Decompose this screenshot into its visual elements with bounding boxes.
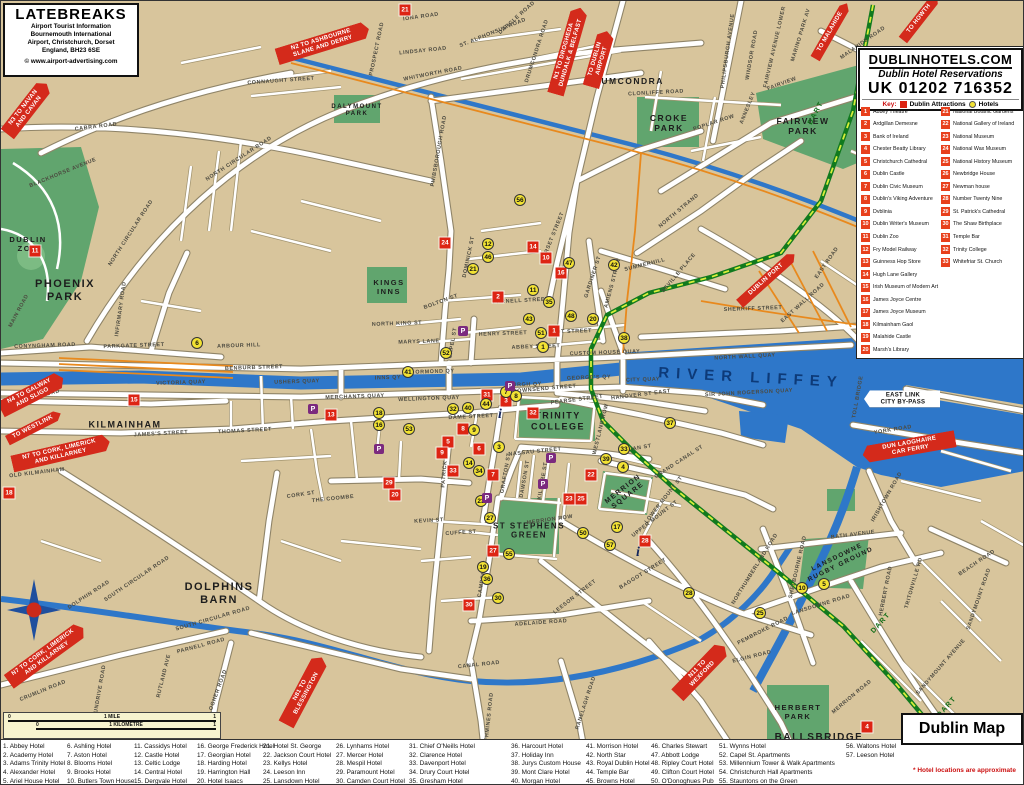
attraction-number: 5: [861, 157, 870, 166]
road-label: DRUMCONDRA ROAD: [524, 19, 550, 84]
hotel-legend-item: 47. Abbott Lodge: [651, 752, 714, 761]
attraction-list-item: 14Hugh Lane Gallery: [861, 270, 917, 279]
attraction-name: Christchurch Cathedral: [873, 159, 927, 165]
hotel-legend-item: 30. Camden Court Hotel: [336, 778, 405, 785]
hotel-legend-item: 41. Morrison Hotel: [586, 743, 650, 752]
road-label: LEESON STREET: [552, 578, 597, 615]
map-area-label: RIVER LIFFEY: [658, 364, 844, 391]
attraction-marker: 18: [4, 488, 15, 499]
road-label: SEVILLE PLACE: [661, 252, 698, 294]
attraction-number: 8: [861, 195, 870, 204]
road-label: WESTLAND ROW: [592, 403, 611, 455]
attraction-list-item: 20Marsh's Library: [861, 345, 909, 354]
attraction-number: 33: [941, 258, 950, 267]
road-label: CLONLIFFE ROAD: [628, 89, 684, 98]
attraction-list-item: 9Dvblinia: [861, 207, 892, 216]
attraction-name: Bank of Ireland: [873, 134, 909, 140]
road-label: INFIRMARY ROAD: [114, 281, 128, 337]
attraction-list-item: 25National History Museum: [941, 157, 1012, 166]
map-area-label: HERBERT PARK: [775, 704, 822, 722]
attraction-marker: 2: [493, 292, 504, 303]
hotel-marker: 40: [462, 402, 474, 414]
road-label: CONYNGHAM ROAD: [14, 342, 76, 350]
hotel-marker: 35: [543, 296, 555, 308]
road-label: SANDYMOUNT ROAD: [966, 567, 993, 630]
hotel-legend-item: 56. Waltons Hotel: [846, 743, 896, 752]
hotel-legend-item: 9. Brooks Hotel: [67, 769, 134, 778]
road-label: BENBURB STREET: [225, 364, 283, 372]
road-label: NORTH WALL QUAY: [714, 352, 776, 361]
parking-icon: P: [458, 326, 468, 336]
attraction-number: 25: [941, 157, 950, 166]
attraction-list-item: 28Number Twenty Nine: [941, 195, 1002, 204]
hotel-legend-item: 14. Central Hotel: [134, 769, 187, 778]
attraction-list-item: 27Newman house: [941, 182, 990, 191]
road-label: SUNDRIVE ROAD: [92, 664, 107, 717]
hotel-legend-column: 6. Ashling Hotel7. Aston Hotel8. Blooms …: [67, 743, 134, 785]
direction-banner: EAST LINK CITY BY-PASS: [864, 390, 940, 407]
direction-banner: N81 TO BLESSINGTON: [278, 653, 329, 728]
attraction-number: 13: [861, 258, 870, 267]
hotel-legend-column: 46. Charles Stewart47. Abbott Lodge48. R…: [651, 743, 714, 785]
hotel-legend-item: 12. Castle Hotel: [134, 752, 187, 761]
scale-bar: 0 1 MILE 1 0 1 KILOMETRE 1: [3, 712, 221, 739]
road-label: ELGIN ROAD: [732, 649, 772, 664]
attraction-list-item: 11Dublin Zoo: [861, 233, 899, 242]
road-label: DARGLE ROAD: [498, 0, 537, 36]
hotel-marker: 5: [818, 578, 830, 590]
hotel-marker: 34: [473, 465, 485, 477]
map-title-box: Dublin Map: [901, 713, 1023, 745]
scale-one: 1: [213, 722, 216, 728]
attraction-marker: 28: [640, 536, 651, 547]
road-label: ABBEY STREET: [512, 343, 561, 351]
attraction-list-item: 33Whitefriar St. Church: [941, 258, 1002, 267]
road-label: MERRION ROAD: [831, 679, 873, 716]
road-label: PHIBSBOROUGH ROAD: [430, 115, 448, 187]
attraction-name: National Museum: [953, 134, 994, 140]
road-label: GARDINER ST: [583, 255, 602, 298]
hotel-marker: 48: [565, 310, 577, 322]
attraction-marker: 7: [488, 470, 499, 481]
road-label: ANNESLEY: [739, 91, 757, 125]
hotel-legend: 1. Abbey Hotel2. Academy Hotel3. Adams T…: [1, 739, 1024, 785]
publisher-line: Airport, Christchurch, Dorset: [5, 39, 137, 47]
attraction-number: 17: [861, 308, 870, 317]
attraction-marker: 13: [326, 410, 337, 421]
road-label: PROSPECT ROAD: [368, 22, 385, 77]
road-label: SUMMERHILL: [624, 257, 666, 273]
attraction-name: Marsh's Library: [873, 347, 909, 353]
road-label: NORTHUMBERLAND ROAD: [731, 532, 780, 605]
map-area-label: KINGS INNS: [373, 279, 404, 297]
hotel-legend-item: 4. Alexander Hotel: [3, 769, 65, 778]
hotel-legend-item: 37. Holiday Inn: [511, 752, 581, 761]
information-icon: i: [636, 545, 640, 561]
hotel-legend-item: 23. Kellys Hotel: [263, 760, 331, 769]
hotel-legend-item: 24. Leeson Inn: [263, 769, 331, 778]
hotel-marker: 56: [514, 194, 526, 206]
hotel-legend-item: 11. Cassidys Hotel: [134, 743, 187, 752]
hotel-marker: 55: [503, 548, 515, 560]
direction-banner: N3 TO NAVAN AND CAVAN: [0, 78, 53, 139]
hotel-marker: 21: [467, 263, 479, 275]
attraction-name: Dublin Castle: [873, 171, 905, 177]
road-label: USHERS QUAY: [274, 378, 320, 386]
road-label: ARBOUR HILL: [217, 342, 261, 350]
map-area-label: DALYMOUNT PARK: [331, 104, 382, 118]
hotel-marker: 41: [402, 366, 414, 378]
attraction-marker: 6: [474, 444, 485, 455]
hotel-marker: 42: [608, 259, 620, 271]
hotel-legend-item: 27. Mercer Hotel: [336, 752, 405, 761]
hotel-legend-item: 6. Ashling Hotel: [67, 743, 134, 752]
hotel-marker: 19: [477, 561, 489, 573]
hotel-legend-item: 35. Gresham Hotel: [409, 778, 475, 785]
road-label: MERCHANTS QUAY: [325, 393, 385, 401]
attraction-marker: 14: [528, 242, 539, 253]
hotel-legend-column: 36. Harcourt Hotel37. Holiday Inn38. Jur…: [511, 743, 581, 785]
road-label: FAIRVIEW: [767, 76, 798, 92]
hotel-legend-item: 5. Ariel House Hotel: [3, 778, 65, 785]
hotel-legend-item: 3. Adams Trinity Hotel: [3, 760, 65, 769]
attraction-name: Dublin Civic Museum: [873, 184, 923, 190]
hotel-legend-column: 31. Chief O'Neills Hotel32. Clarence Hot…: [409, 743, 475, 785]
hotel-legend-item: 45. Browns Hotel: [586, 778, 650, 785]
hotel-reservations-panel: DUBLINHOTELS.COM Dublin Hotel Reservatio…: [856, 46, 1024, 359]
map-area-label: FAIRVIEW PARK: [777, 116, 830, 136]
publisher-line: England, BH23 6SE: [5, 47, 137, 55]
map-area-label: LANSDOWNE RUGBY GROUND: [803, 538, 874, 583]
attraction-number: 32: [941, 245, 950, 254]
road-label: CRUMLIN ROAD: [19, 679, 67, 703]
attraction-number: 7: [861, 182, 870, 191]
road-label: MARINO PARK AV: [790, 8, 812, 62]
attraction-marker: 22: [586, 470, 597, 481]
hotel-marker: 30: [492, 592, 504, 604]
road-label: LANSDOWNE ROAD: [791, 593, 851, 617]
map-area-label: MERRION SQUARE: [604, 473, 648, 513]
attraction-name: Irish Museum of Modern Art: [873, 284, 938, 290]
hotel-marker: 46: [482, 251, 494, 263]
road-label: NORTH STRAND: [658, 193, 700, 230]
attraction-number: 16: [861, 295, 870, 304]
hotel-legend-item: 29. Paramount Hotel: [336, 769, 405, 778]
road-label: GRAFTON ST: [499, 452, 512, 493]
attraction-list-item: 10Dublin Writer's Museum: [861, 220, 929, 229]
hotel-legend-item: 42. North Star: [586, 752, 650, 761]
attraction-number: 28: [941, 195, 950, 204]
road-label: DAWSON ST: [519, 460, 532, 499]
attraction-name: National Botanic Gardens: [953, 109, 1013, 115]
hotel-legend-column: 21. Hotel St. George22. Jackson Court Ho…: [263, 743, 331, 785]
attraction-list-item: 4Chester Beatty Library: [861, 145, 926, 154]
hotel-marker: 39: [600, 453, 612, 465]
attraction-list-item: 22National Gallery of Ireland: [941, 120, 1014, 129]
road-label: BAGGOT STREET: [618, 557, 667, 591]
scale-km-bar: [36, 728, 216, 730]
attraction-marker: 33: [448, 466, 459, 477]
attraction-number: 14: [861, 270, 870, 279]
hotel-marker: 57: [604, 539, 616, 551]
hotel-marker: 12: [482, 238, 494, 250]
road-label: CANAL ROAD: [458, 660, 501, 670]
hotel-marker: 3: [493, 441, 505, 453]
road-label: MARYS LANE: [398, 338, 440, 345]
road-label: DOLPHIN ROAD: [67, 579, 111, 611]
attraction-list-item: 5Christchurch Cathedral: [861, 157, 927, 166]
hotel-legend-item: 49. Clifton Court Hotel: [651, 769, 714, 778]
attraction-list-item: 1Abbey Theatre: [861, 107, 908, 116]
attraction-number: 22: [941, 120, 950, 129]
attraction-number: 3: [861, 132, 870, 141]
hotel-marker: 44: [480, 398, 492, 410]
attraction-number: 23: [941, 132, 950, 141]
road-label: LINDSAY ROAD: [399, 46, 447, 57]
road-label: IRISHTOWN ROAD: [870, 471, 903, 523]
direction-banner: DUBLIN PORT: [736, 250, 798, 307]
hotel-marker: 36: [481, 573, 493, 585]
hotel-legend-item: 36. Harcourt Hotel: [511, 743, 581, 752]
road-label: SHERRIFF STREET: [724, 305, 783, 313]
hotel-marker: 27: [484, 512, 496, 524]
attraction-list-item: 32Trinity College: [941, 245, 987, 254]
hotel-legend-column: 51. Wynns Hotel52. Capel St. Apartments5…: [719, 743, 835, 785]
hotel-legend-item: 51. Wynns Hotel: [719, 743, 835, 752]
road-label: POPLAR ROW: [693, 113, 736, 132]
attraction-list-item: 12Fry Model Railway: [861, 245, 917, 254]
hotel-marker: 43: [523, 313, 535, 325]
hotel-marker: 53: [403, 423, 415, 435]
attraction-name: Chester Beatty Library: [873, 146, 926, 152]
attraction-marker: 16: [556, 268, 567, 279]
attraction-number: 1: [861, 107, 870, 116]
hotel-marker: 25: [754, 607, 766, 619]
attraction-marker: 25: [576, 494, 587, 505]
hotel-marker: 18: [373, 407, 385, 419]
site-subtitle: Dublin Hotel Reservations: [862, 69, 1019, 80]
attraction-marker: 9: [437, 448, 448, 459]
road-label: VICTORIA QUAY: [156, 379, 206, 387]
road-label: PARNELL ROAD: [176, 637, 225, 656]
hotel-legend-item: 34. Drury Court Hotel: [409, 769, 475, 778]
attraction-name: Trinity College: [953, 247, 987, 253]
publisher-box: LATEBREAKS Airport Tourist Information B…: [3, 3, 139, 77]
attraction-name: Guinness Hop Store: [873, 259, 921, 265]
hotel-marker: 11: [527, 284, 539, 296]
road-label: NORTH CIRCULAR ROAD: [107, 199, 154, 267]
attraction-list-item: 7Dublin Civic Museum: [861, 182, 923, 191]
attraction-number: 2: [861, 120, 870, 129]
attraction-number: 30: [941, 220, 950, 229]
attraction-marker: 29: [384, 478, 395, 489]
hotel-legend-item: 43. Royal Dublin Hotel: [586, 760, 650, 769]
publisher-website: © www.airport-advertising.com: [5, 58, 137, 65]
attraction-name: Abbey Theatre: [873, 109, 908, 115]
scale-zero: 0: [8, 714, 11, 720]
road-label: CONNAUGHT STREET: [247, 76, 315, 87]
hotel-legend-item: 15. Dergvale Hotel: [134, 778, 187, 785]
attraction-name: James Joyce Centre: [873, 297, 921, 303]
attraction-name: Temple Bar: [953, 234, 980, 240]
attraction-number: 26: [941, 170, 950, 179]
attraction-name: The Shaw Birthplace: [953, 221, 1002, 227]
attraction-number: 12: [861, 245, 870, 254]
attraction-marker: 24: [440, 238, 451, 249]
road-label: NORTH KING ST: [372, 320, 423, 328]
hotel-legend-item: 54. Christchurch Hall Apartments: [719, 769, 835, 778]
attraction-marker: 21: [400, 5, 411, 16]
hotel-legend-item: 28. Mespil Hotel: [336, 760, 405, 769]
publisher-title: LATEBREAKS: [5, 6, 137, 23]
scale-zero: 0: [36, 722, 39, 728]
attraction-name: Dublin Zoo: [873, 234, 899, 240]
attraction-number: 10: [861, 220, 870, 229]
attraction-number: 4: [861, 145, 870, 154]
scale-km-label: 1 KILOMETRE: [109, 722, 143, 728]
attraction-list-item: 21National Botanic Gardens: [941, 107, 1013, 116]
hotel-legend-item: 40. Morgan Hotel: [511, 778, 581, 785]
hotel-marker: 20: [587, 313, 599, 325]
attraction-marker: 15: [129, 395, 140, 406]
attraction-list-item: 30The Shaw Birthplace: [941, 220, 1002, 229]
attraction-number: 15: [861, 283, 870, 292]
attraction-name: Fry Model Railway: [873, 247, 917, 253]
hotel-legend-item: 57. Leeson Hotel: [846, 752, 896, 761]
hotel-marker: 6: [191, 337, 203, 349]
hotel-legend-item: 7. Aston Hotel: [67, 752, 134, 761]
hotel-legend-item: 22. Jackson Court Hotel: [263, 752, 331, 761]
publisher-line: Bournemouth International: [5, 31, 137, 39]
attractions-list: 1Abbey Theatre2Ardgillan Demesne3Bank of…: [857, 105, 1024, 358]
attraction-name: National Gallery of Ireland: [953, 121, 1014, 127]
road-label: HENRY STREET: [479, 330, 528, 338]
hotel-legend-item: 33. Davenport Hotel: [409, 760, 475, 769]
map-area-label: DOLPHINS BARN: [185, 581, 254, 607]
road-label: HERBERT ROAD: [878, 566, 894, 617]
hotel-legend-item: 48. Ripley Court Hotel: [651, 760, 714, 769]
road-label: PEARSE STREET: [550, 394, 603, 406]
road-label: CABRA ROAD: [74, 121, 117, 132]
road-label: EAST WALL ROAD: [780, 282, 826, 324]
attraction-name: Dublin's Viking Adventure: [873, 196, 933, 202]
attraction-marker: 32: [528, 408, 539, 419]
attraction-number: 9: [861, 207, 870, 216]
attraction-list-item: 31Temple Bar: [941, 233, 980, 242]
hotel-marker: 51: [535, 327, 547, 339]
hotel-legend-item: 55. Stauntons on the Green: [719, 778, 835, 785]
map-area-label: DUBLIN ZOO: [9, 236, 46, 254]
parking-icon: P: [505, 381, 515, 391]
hotel-marker: 37: [664, 417, 676, 429]
site-title: DUBLINHOTELS.COM: [869, 52, 1013, 69]
hotel-marker: 33: [618, 443, 630, 455]
attraction-number: 19: [861, 333, 870, 342]
attraction-list-item: 3Bank of Ireland: [861, 132, 909, 141]
road-label: PHILIPSBURGH AVENUE: [720, 13, 736, 89]
parking-icon: P: [374, 444, 384, 454]
attraction-number: 27: [941, 182, 950, 191]
direction-banner: N11 TO WEXFORD: [671, 640, 731, 701]
hotel-legend-item: 32. Clarence Hotel: [409, 752, 475, 761]
hotel-legend-column: 26. Lynhams Hotel27. Mercer Hotel28. Mes…: [336, 743, 405, 785]
road-label: CITY QUAY: [626, 376, 660, 383]
road-label: INNS QY: [375, 375, 402, 382]
attraction-number: 6: [861, 170, 870, 179]
hotel-legend-item: 1. Abbey Hotel: [3, 743, 65, 752]
attraction-list-item: 19Malahide Castle: [861, 333, 911, 342]
attraction-marker: 4: [862, 722, 873, 733]
attraction-marker: 8: [458, 424, 469, 435]
road-label: HANOVER ST EAST: [611, 388, 672, 401]
road-label: BOLTON ST: [423, 293, 459, 311]
hotel-legend-item: 21. Hotel St. George: [263, 743, 331, 752]
hotel-locations-footnote: * Hotel locations are approximate: [913, 767, 1016, 774]
attraction-name: Kilmainham Gaol: [873, 322, 913, 328]
road-label: GEORGE'S QY: [567, 374, 612, 382]
hotel-marker: 17: [611, 521, 623, 533]
attraction-name: Hugh Lane Gallery: [873, 272, 917, 278]
road-label: CUSTOM HOUSE QUAY: [570, 349, 641, 357]
dublin-map-page: PHOENIX PARKDUBLIN ZOOKILMAINHAMDOLPHINS…: [0, 0, 1024, 785]
attraction-list-item: 26Newbridge House: [941, 170, 995, 179]
attraction-list-item: 16James Joyce Centre: [861, 295, 921, 304]
attraction-list-item: 23National Museum: [941, 132, 994, 141]
hotel-marker: 10: [796, 582, 808, 594]
road-label: FAIRVIEW AVENUE LOWER: [763, 6, 788, 89]
attraction-name: Newbridge House: [953, 171, 995, 177]
scale-one: 1: [213, 714, 216, 720]
publisher-line: Airport Tourist Information: [5, 23, 137, 31]
road-label: LOWER MOUNT ST: [644, 475, 685, 524]
hotel-marker: 1: [537, 341, 549, 353]
attraction-name: Whitefriar St. Church: [953, 259, 1002, 265]
attraction-list-item: 13Guinness Hop Store: [861, 258, 921, 267]
map-area-label: PHOENIX PARK: [35, 278, 95, 304]
hotel-legend-item: 46. Charles Stewart: [651, 743, 714, 752]
attraction-marker: 11: [30, 246, 41, 257]
parking-icon: P: [308, 404, 318, 414]
map-title: Dublin Map: [919, 720, 1005, 738]
attraction-name: Dublin Writer's Museum: [873, 221, 929, 227]
hotel-marker: 28: [683, 587, 695, 599]
road-label: THE COOMBE: [312, 494, 355, 504]
hotel-legend-item: 39. Mont Clare Hotel: [511, 769, 581, 778]
parking-icon: P: [482, 493, 492, 503]
hotel-marker: 32: [447, 403, 459, 415]
hotel-legend-column: 11. Cassidys Hotel12. Castle Hotel13. Ce…: [134, 743, 187, 785]
attraction-name: Dvblinia: [873, 209, 892, 215]
road-label: RANELAGH ROAD: [575, 676, 598, 731]
attraction-number: 31: [941, 233, 950, 242]
road-label: WINDSOR ROAD: [745, 30, 760, 81]
attraction-marker: 23: [564, 494, 575, 505]
attraction-list-item: 18Kilmainham Gaol: [861, 320, 913, 329]
attraction-name: St. Patrick's Cathedral: [953, 209, 1005, 215]
road-label: THOMAS STREET: [218, 427, 272, 436]
road-label: WHITWORTH ROAD: [403, 65, 463, 82]
attraction-marker: 30: [464, 600, 475, 611]
parking-icon: P: [538, 479, 548, 489]
direction-banner: TO HOWTH: [899, 0, 942, 43]
attraction-number: 24: [941, 145, 950, 154]
map-area-label: TRINITY COLLEGE: [531, 410, 585, 431]
parking-icon: P: [546, 453, 556, 463]
road-label: KEVIN ST: [414, 517, 444, 525]
hotel-legend-item: 26. Lynhams Hotel: [336, 743, 405, 752]
road-label: CUFFE ST: [445, 529, 476, 537]
road-label: EAST ROAD: [814, 246, 840, 280]
